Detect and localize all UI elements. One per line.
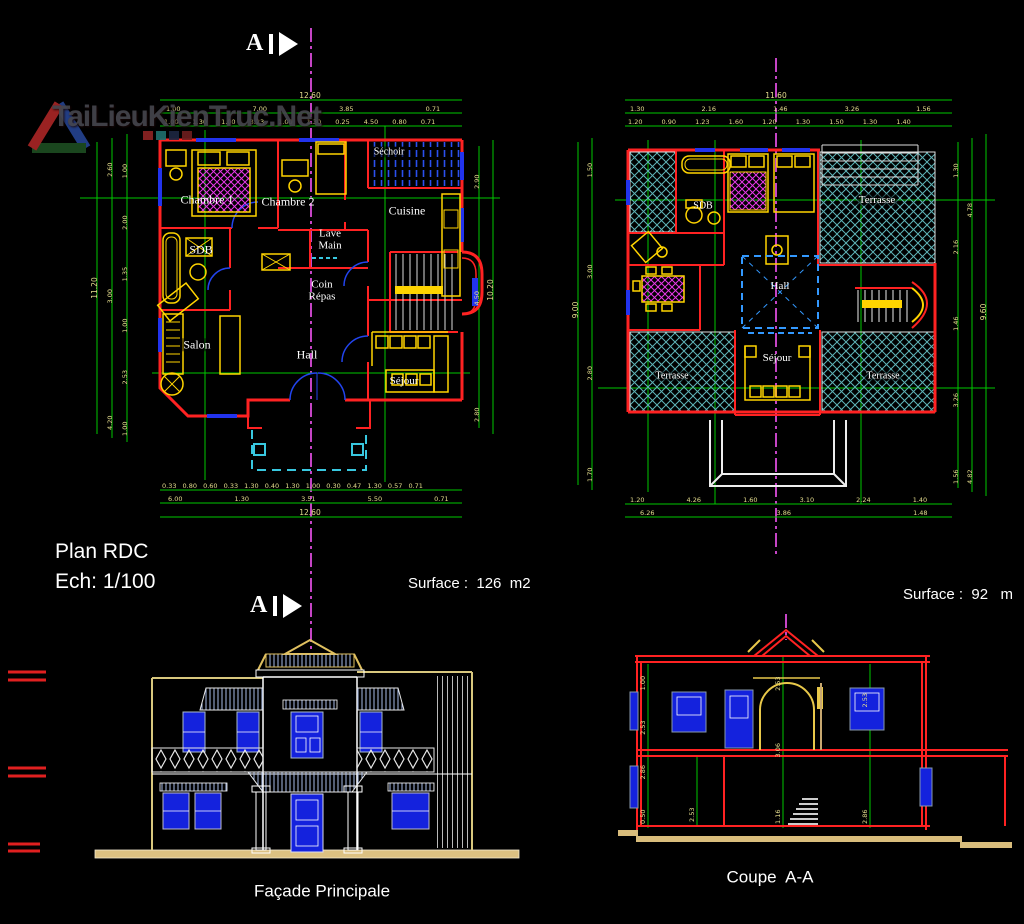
plan-rdc-scale: Ech: 1/100 bbox=[55, 570, 155, 594]
section-marker-label: A bbox=[250, 592, 267, 619]
surface-rdc: Surface : 126 m2 bbox=[408, 576, 531, 593]
room-label-coin-repas: Coin Répas bbox=[309, 279, 336, 304]
room-label-hall-rdc: Hall bbox=[297, 348, 318, 361]
room-label-chambre1: Chambre 1 bbox=[181, 193, 234, 206]
svg-text:9.60: 9.60 bbox=[979, 303, 988, 320]
svg-text:6.26 3.86 1.48: 6.26 3.86 1.48 bbox=[640, 509, 928, 517]
svg-text:1.20 4.26 1.60 3.10 2.24 1.40: 1.20 4.26 1.60 3.10 2.24 1.40 bbox=[630, 496, 927, 504]
plan-rdc-title: Plan RDC bbox=[55, 540, 148, 564]
svg-text:10.20: 10.20 bbox=[486, 279, 495, 301]
svg-text:1.30 2.16 1.46 3.26 1.56: 1.30 2.16 1.46 3.26 1.56 bbox=[630, 105, 931, 113]
svg-text:2.86 2.53: 2.86 2.53 bbox=[861, 693, 869, 824]
room-label-cuisine: Cuisine bbox=[389, 204, 426, 217]
section-marker-flag-bar bbox=[269, 34, 273, 54]
section-marker-flag-bar bbox=[273, 596, 277, 616]
coupe-drawing bbox=[618, 630, 1012, 848]
svg-text:1.70 2.80 3.00 1.50: 1.70 2.80 3.00 1.50 bbox=[586, 163, 594, 482]
section-marker-arrow-icon bbox=[279, 32, 298, 56]
svg-text:2.53: 2.53 bbox=[688, 808, 696, 822]
svg-text:12.60: 12.60 bbox=[299, 508, 321, 517]
room-label-sejour-rdc: Séjour bbox=[390, 375, 419, 387]
section-marker-a-bottom: A bbox=[250, 592, 302, 619]
svg-text:0.33 0.80 0.60 0.33 1.30 0.40: 0.33 0.80 0.60 0.33 1.30 0.40 1.30 1.00 … bbox=[162, 482, 423, 490]
svg-text:4.20 3.00 2.60: 4.20 3.00 2.60 bbox=[106, 162, 114, 430]
room-label-sdb-etage: SDB bbox=[693, 200, 712, 211]
room-label-chambre2: Chambre 2 bbox=[262, 195, 315, 208]
left-edge-ticks bbox=[8, 672, 46, 851]
room-label-sejour-etage: Séjour bbox=[763, 352, 792, 364]
room-label-sdb-rdc: SDB bbox=[189, 243, 212, 256]
room-label-lave-main: Lave Main bbox=[318, 228, 341, 253]
facade-drawing bbox=[95, 640, 519, 858]
svg-text:9.00: 9.00 bbox=[571, 301, 580, 318]
room-label-terrasse-ne: Terrasse bbox=[857, 194, 898, 206]
room-label-terrasse-sw: Terrasse bbox=[653, 370, 690, 381]
section-marker-a-top: A bbox=[246, 30, 298, 57]
svg-text:1.20 0.90 1.23 1.60 1.20 1.30: 1.20 0.90 1.23 1.60 1.20 1.30 1.50 1.30 … bbox=[628, 118, 911, 126]
cad-drawing-canvas: 12.60 1.00 7.00 3.85 0.71 1.00 1.30 1.00… bbox=[0, 0, 1024, 924]
plan-rdc-drawing bbox=[158, 140, 482, 470]
room-label-terrasse-se: Terrasse bbox=[864, 370, 901, 381]
watermark-text: TaiLieuKienTruc.Net bbox=[52, 100, 321, 134]
svg-text:1.16 3.06 2.53: 1.16 3.06 2.53 bbox=[774, 676, 782, 824]
coupe-label: Coupe A-A bbox=[727, 867, 814, 886]
surface-etage: Surface : 92 m bbox=[903, 587, 1013, 604]
svg-text:6.00 1.30 3.51 5.50 0.71: 6.00 1.30 3.51 5.50 0.71 bbox=[168, 495, 449, 503]
room-label-hall-etage: Hall bbox=[771, 280, 790, 292]
room-label-sechoir: Séchoir bbox=[372, 146, 407, 157]
svg-text:12.60: 12.60 bbox=[299, 91, 321, 100]
cad-screenshot: 12.60 1.00 7.00 3.85 0.71 1.00 1.30 1.00… bbox=[0, 0, 1024, 924]
svg-text:11.20: 11.20 bbox=[90, 277, 99, 299]
svg-text:1.00 2.53 1.00 1.35 2.00 1.00: 1.00 2.53 1.00 1.35 2.00 1.00 bbox=[121, 164, 129, 436]
section-marker-label: A bbox=[246, 30, 263, 57]
svg-text:11.60: 11.60 bbox=[765, 91, 787, 100]
section-marker-arrow-icon bbox=[283, 594, 302, 618]
svg-text:1.56 3.26 1.46 2.16 1.30: 1.56 3.26 1.46 2.16 1.30 bbox=[952, 163, 960, 484]
svg-text:0.50 2.86 2.53 1.00: 0.50 2.86 2.53 1.00 bbox=[639, 676, 647, 824]
svg-text:4.82 4.78: 4.82 4.78 bbox=[966, 203, 974, 484]
svg-text:2.80 4.50 2.90: 2.80 4.50 2.90 bbox=[473, 174, 481, 422]
facade-label: Façade Principale bbox=[254, 881, 390, 900]
room-label-salon: Salon bbox=[181, 338, 212, 351]
